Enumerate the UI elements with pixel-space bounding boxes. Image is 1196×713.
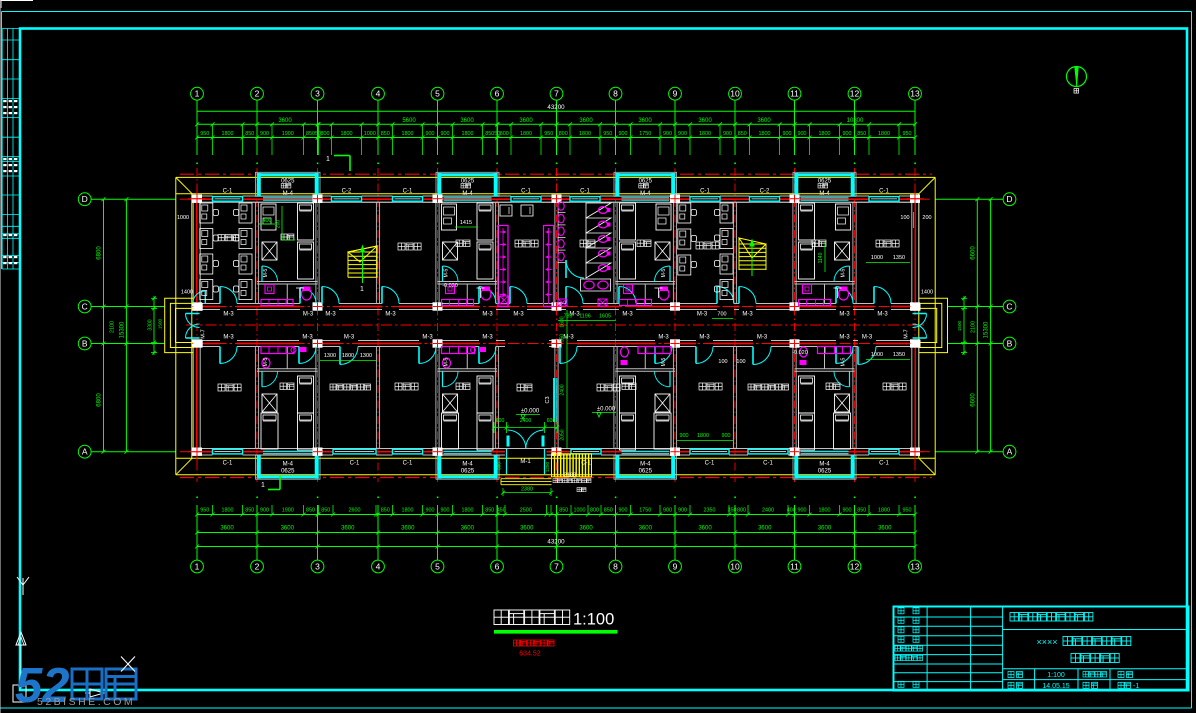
- svg-text:1800: 1800: [699, 131, 711, 137]
- svg-text:C3: C3: [545, 396, 551, 403]
- svg-text:2600: 2600: [349, 507, 361, 513]
- svg-text:M-3: M-3: [482, 335, 493, 341]
- svg-text:1: 1: [195, 89, 200, 99]
- svg-text:M-1: M-1: [520, 459, 531, 465]
- svg-text:M-3: M-3: [757, 335, 768, 341]
- svg-text:C-1: C-1: [223, 461, 233, 467]
- svg-text:1800: 1800: [759, 131, 771, 137]
- svg-text:B: B: [1007, 339, 1013, 349]
- svg-text:M-7: M-7: [904, 329, 910, 338]
- svg-text:11: 11: [790, 89, 799, 99]
- svg-text:900: 900: [663, 131, 672, 137]
- svg-text:A: A: [82, 447, 88, 457]
- svg-text:3300: 3300: [148, 319, 154, 330]
- svg-text:900: 900: [260, 131, 269, 137]
- svg-text:M-3: M-3: [862, 335, 873, 341]
- svg-text:2400: 2400: [762, 507, 774, 513]
- svg-text:43200: 43200: [547, 104, 565, 111]
- svg-text:7: 7: [554, 89, 559, 99]
- svg-text:850: 850: [245, 131, 254, 137]
- svg-text:M-5: M-5: [444, 357, 450, 366]
- svg-text:850: 850: [485, 131, 494, 137]
- svg-text:3600: 3600: [401, 525, 415, 531]
- svg-text:950: 950: [903, 131, 912, 137]
- svg-text:800: 800: [500, 131, 509, 137]
- svg-text:1: 1: [195, 561, 200, 571]
- svg-text:450: 450: [497, 507, 506, 513]
- svg-text:M-3: M-3: [697, 312, 708, 318]
- svg-text:1800: 1800: [520, 131, 532, 137]
- svg-text:-1: -1: [1133, 683, 1139, 690]
- svg-text:2400: 2400: [560, 384, 566, 395]
- svg-text:M-3: M-3: [877, 312, 888, 318]
- svg-text:3600: 3600: [281, 525, 295, 531]
- svg-text:850: 850: [306, 131, 315, 137]
- svg-text:0625: 0625: [639, 469, 653, 475]
- svg-text:12: 12: [850, 561, 860, 571]
- svg-text:3600: 3600: [579, 118, 593, 124]
- svg-text:1140: 1140: [818, 252, 824, 263]
- svg-text:1800: 1800: [462, 507, 474, 513]
- svg-text:3600: 3600: [461, 525, 475, 531]
- svg-text:C-1: C-1: [700, 188, 710, 194]
- svg-text:M-3: M-3: [422, 335, 433, 341]
- svg-text:C: C: [82, 302, 88, 312]
- svg-text:1400: 1400: [181, 290, 193, 296]
- svg-text:8: 8: [613, 561, 618, 571]
- svg-text:D: D: [1006, 194, 1012, 204]
- svg-text:B: B: [82, 339, 88, 349]
- svg-text:600: 600: [496, 418, 505, 424]
- svg-text:600: 600: [547, 418, 556, 424]
- svg-text:14.05.15: 14.05.15: [1042, 683, 1069, 690]
- svg-text:9: 9: [673, 561, 678, 571]
- svg-text:950: 950: [903, 507, 912, 513]
- svg-text:1000: 1000: [871, 352, 883, 358]
- svg-text:400: 400: [262, 218, 271, 224]
- svg-text:100: 100: [900, 215, 909, 221]
- svg-text:M-3: M-3: [223, 312, 234, 318]
- svg-text:3600: 3600: [638, 118, 652, 124]
- svg-text:1400: 1400: [921, 290, 933, 296]
- svg-text:M-4: M-4: [640, 191, 651, 197]
- svg-text:M-5: M-5: [263, 268, 269, 277]
- svg-text:200: 200: [276, 220, 282, 229]
- svg-text:12: 12: [850, 89, 860, 99]
- svg-text:1000: 1000: [364, 131, 376, 137]
- svg-text:1250: 1250: [545, 461, 550, 472]
- svg-text:M-5: M-5: [661, 357, 667, 366]
- svg-text:3600: 3600: [519, 118, 533, 124]
- svg-text:900: 900: [619, 507, 628, 513]
- svg-text:C-1: C-1: [350, 461, 360, 467]
- svg-text:M-5: M-5: [444, 268, 450, 277]
- svg-text:850: 850: [381, 507, 390, 513]
- svg-text:M-3: M-3: [513, 312, 524, 318]
- svg-text:1415: 1415: [460, 220, 472, 226]
- svg-text:M-4: M-4: [462, 191, 473, 197]
- svg-text:1800: 1800: [819, 131, 831, 137]
- svg-text:M-3: M-3: [385, 312, 396, 318]
- svg-text:1800: 1800: [878, 507, 890, 513]
- svg-text:M-3: M-3: [658, 335, 669, 341]
- svg-text:C-1: C-1: [521, 188, 531, 194]
- svg-text:C-1: C-1: [879, 188, 889, 194]
- svg-text:1600: 1600: [560, 316, 566, 327]
- svg-text:1800: 1800: [579, 131, 591, 137]
- svg-text:350: 350: [728, 507, 737, 513]
- svg-text:550: 550: [560, 334, 566, 343]
- svg-text:M-3: M-3: [839, 312, 850, 318]
- svg-text:1000: 1000: [177, 215, 189, 221]
- svg-text:6800: 6800: [97, 246, 103, 260]
- svg-text:M-4: M-4: [819, 191, 830, 197]
- svg-text:900: 900: [843, 131, 852, 137]
- svg-text:850: 850: [306, 507, 315, 513]
- svg-text:700: 700: [717, 312, 726, 318]
- svg-text:900: 900: [723, 131, 732, 137]
- svg-text:850: 850: [245, 507, 254, 513]
- svg-text:C-2: C-2: [760, 188, 770, 194]
- svg-text:3: 3: [315, 89, 320, 99]
- svg-text:10: 10: [730, 561, 740, 571]
- svg-text:2: 2: [255, 561, 260, 571]
- svg-text:1900: 1900: [282, 131, 294, 137]
- svg-text:A: A: [1007, 447, 1013, 457]
- svg-text:950: 950: [603, 131, 612, 137]
- svg-text:1:100: 1:100: [1047, 672, 1065, 679]
- svg-text:1800: 1800: [222, 131, 234, 137]
- svg-text:3600: 3600: [341, 525, 355, 531]
- svg-text:1800: 1800: [462, 131, 474, 137]
- svg-text:3: 3: [315, 561, 320, 571]
- svg-text:1800: 1800: [402, 131, 414, 137]
- svg-text:M-3: M-3: [482, 312, 493, 318]
- svg-text:200: 200: [922, 215, 931, 221]
- svg-text:M-3: M-3: [344, 335, 355, 341]
- svg-text:900: 900: [619, 131, 628, 137]
- svg-text:1300: 1300: [360, 353, 372, 359]
- svg-text:100: 100: [718, 359, 727, 365]
- svg-text:±0.000: ±0.000: [597, 407, 616, 413]
- svg-text:850: 850: [485, 507, 494, 513]
- svg-text:1: 1: [261, 482, 265, 489]
- svg-text:1800: 1800: [697, 433, 709, 439]
- svg-text:10800: 10800: [847, 118, 864, 124]
- svg-text:3600: 3600: [460, 118, 474, 124]
- svg-text:850: 850: [321, 507, 330, 513]
- svg-text:800: 800: [737, 507, 746, 513]
- svg-text:1800: 1800: [342, 353, 354, 359]
- svg-text:0625: 0625: [818, 469, 832, 475]
- svg-text:8: 8: [613, 89, 618, 99]
- svg-text:M-5: M-5: [841, 268, 847, 277]
- svg-text:1605: 1605: [599, 314, 611, 320]
- svg-text:C-1: C-1: [580, 188, 590, 194]
- svg-text:2350: 2350: [704, 507, 716, 513]
- svg-text:52BISHE.COM: 52BISHE.COM: [37, 696, 135, 708]
- svg-text:C: C: [1006, 302, 1012, 312]
- svg-text:4: 4: [376, 561, 381, 571]
- svg-text:800: 800: [559, 131, 568, 137]
- svg-text:900: 900: [722, 433, 731, 439]
- svg-text:850: 850: [604, 507, 613, 513]
- svg-text:13: 13: [910, 561, 920, 571]
- svg-text:1750: 1750: [639, 131, 651, 137]
- svg-text:6600: 6600: [970, 393, 976, 407]
- svg-text:1: 1: [326, 156, 330, 163]
- svg-text:-0.020: -0.020: [442, 283, 458, 289]
- svg-text:M-3: M-3: [223, 335, 234, 341]
- svg-text:800: 800: [590, 507, 599, 513]
- svg-text:M-4: M-4: [640, 462, 651, 468]
- svg-text:2400: 2400: [520, 418, 532, 424]
- svg-text:C-1: C-1: [879, 461, 889, 467]
- svg-text:950: 950: [544, 131, 553, 137]
- svg-text:900: 900: [843, 507, 852, 513]
- svg-text:7: 7: [554, 561, 559, 571]
- svg-text:1:100: 1:100: [573, 611, 614, 629]
- svg-text:M-4: M-4: [283, 191, 294, 197]
- svg-text:M-3: M-3: [742, 312, 753, 318]
- svg-text:2100: 2100: [970, 321, 976, 333]
- svg-text:300: 300: [497, 462, 502, 470]
- svg-text:850: 850: [738, 131, 747, 137]
- svg-text:1: 1: [360, 286, 364, 293]
- svg-text:1800: 1800: [402, 507, 414, 513]
- svg-text:1800: 1800: [878, 131, 890, 137]
- svg-text:M-3: M-3: [699, 335, 710, 341]
- svg-text:10: 10: [730, 89, 740, 99]
- svg-text:1300: 1300: [324, 353, 336, 359]
- svg-text:M-5: M-5: [841, 357, 847, 366]
- svg-text:900: 900: [260, 507, 269, 513]
- svg-text:M-4: M-4: [819, 462, 830, 468]
- svg-text:1350: 1350: [893, 255, 905, 261]
- svg-text:C-1: C-1: [223, 188, 233, 194]
- svg-text:0625: 0625: [281, 469, 295, 475]
- svg-text:900: 900: [798, 507, 807, 513]
- svg-text:6600: 6600: [970, 246, 976, 260]
- svg-text:13: 13: [910, 89, 920, 99]
- svg-text:D: D: [82, 194, 88, 204]
- svg-text:2: 2: [255, 89, 260, 99]
- svg-text:3600: 3600: [220, 525, 234, 531]
- svg-text:M-3: M-3: [303, 312, 314, 318]
- svg-text:±0.000: ±0.000: [521, 409, 540, 415]
- svg-text:M-4: M-4: [462, 462, 473, 468]
- svg-text:M-3: M-3: [622, 312, 633, 318]
- svg-text:800: 800: [321, 131, 330, 137]
- svg-text:6: 6: [495, 561, 500, 571]
- svg-text:C-1: C-1: [763, 461, 773, 467]
- svg-text:5: 5: [435, 561, 440, 571]
- svg-text:950: 950: [200, 507, 209, 513]
- svg-text:3600: 3600: [639, 525, 653, 531]
- svg-text:××××: ××××: [1036, 637, 1057, 647]
- svg-text:850: 850: [857, 131, 866, 137]
- svg-text:3600: 3600: [520, 525, 534, 531]
- svg-text:3600: 3600: [758, 525, 772, 531]
- svg-text:900: 900: [441, 131, 450, 137]
- svg-text:3600: 3600: [878, 525, 892, 531]
- svg-text:C-2: C-2: [342, 188, 352, 194]
- svg-text:900: 900: [783, 131, 792, 137]
- svg-text:2380: 2380: [521, 487, 533, 493]
- svg-text:900: 900: [426, 507, 435, 513]
- svg-text:1000: 1000: [871, 255, 883, 261]
- svg-text:1500: 1500: [158, 318, 163, 329]
- svg-text:11: 11: [790, 561, 799, 571]
- svg-text:3600: 3600: [579, 525, 593, 531]
- svg-text:1800: 1800: [341, 131, 353, 137]
- svg-text:M-5: M-5: [263, 357, 269, 366]
- svg-text:900: 900: [678, 131, 687, 137]
- svg-text:C-1: C-1: [403, 461, 413, 467]
- svg-text:4: 4: [376, 89, 381, 99]
- svg-text:900: 900: [441, 507, 450, 513]
- svg-text:C-1: C-1: [705, 461, 715, 467]
- svg-text:M-5: M-5: [661, 268, 667, 277]
- svg-text:100: 100: [736, 359, 745, 365]
- svg-text:2100: 2100: [564, 473, 576, 479]
- svg-text:850: 850: [381, 131, 390, 137]
- svg-text:M-3: M-3: [325, 312, 336, 318]
- svg-text:C-1: C-1: [403, 188, 413, 194]
- svg-text:900: 900: [663, 507, 672, 513]
- svg-text:1750: 1750: [639, 507, 651, 513]
- svg-text:1196: 1196: [579, 314, 591, 320]
- svg-text:6: 6: [495, 89, 500, 99]
- svg-text:900: 900: [680, 433, 689, 439]
- svg-text:3600: 3600: [278, 118, 292, 124]
- svg-text:5600: 5600: [402, 118, 416, 124]
- svg-text:15300: 15300: [120, 321, 126, 338]
- svg-text:400: 400: [787, 507, 796, 513]
- svg-text:2500: 2500: [520, 507, 532, 513]
- svg-text:M-3: M-3: [839, 335, 850, 341]
- svg-text:M-7: M-7: [201, 329, 207, 338]
- svg-text:9: 9: [673, 89, 678, 99]
- svg-text:M-4: M-4: [283, 462, 294, 468]
- svg-text:3600: 3600: [698, 525, 712, 531]
- svg-text:0625: 0625: [461, 469, 475, 475]
- svg-text:1500: 1500: [957, 320, 962, 331]
- svg-text:5: 5: [435, 89, 440, 99]
- svg-text:3600: 3600: [818, 525, 832, 531]
- svg-text:6800: 6800: [97, 393, 103, 407]
- svg-text:850: 850: [559, 507, 568, 513]
- svg-text:3600: 3600: [698, 118, 712, 124]
- svg-text:900: 900: [798, 131, 807, 137]
- svg-text:1800: 1800: [819, 507, 831, 513]
- svg-text:1800: 1800: [222, 507, 234, 513]
- svg-text:634.52: 634.52: [519, 651, 541, 658]
- svg-text:M-3: M-3: [302, 335, 313, 341]
- svg-text:15300: 15300: [984, 321, 990, 338]
- svg-text:900: 900: [678, 507, 687, 513]
- svg-text:1000: 1000: [574, 507, 586, 513]
- svg-text:2050: 2050: [560, 429, 566, 440]
- svg-text:2100: 2100: [110, 321, 116, 333]
- svg-text:3600: 3600: [757, 118, 771, 124]
- svg-text:-0.020: -0.020: [792, 350, 808, 356]
- svg-text:1900: 1900: [282, 507, 294, 513]
- svg-text:950: 950: [200, 131, 209, 137]
- svg-text:43200: 43200: [547, 539, 565, 546]
- svg-text:850: 850: [857, 507, 866, 513]
- svg-text:900: 900: [426, 131, 435, 137]
- svg-text:1350: 1350: [893, 352, 905, 358]
